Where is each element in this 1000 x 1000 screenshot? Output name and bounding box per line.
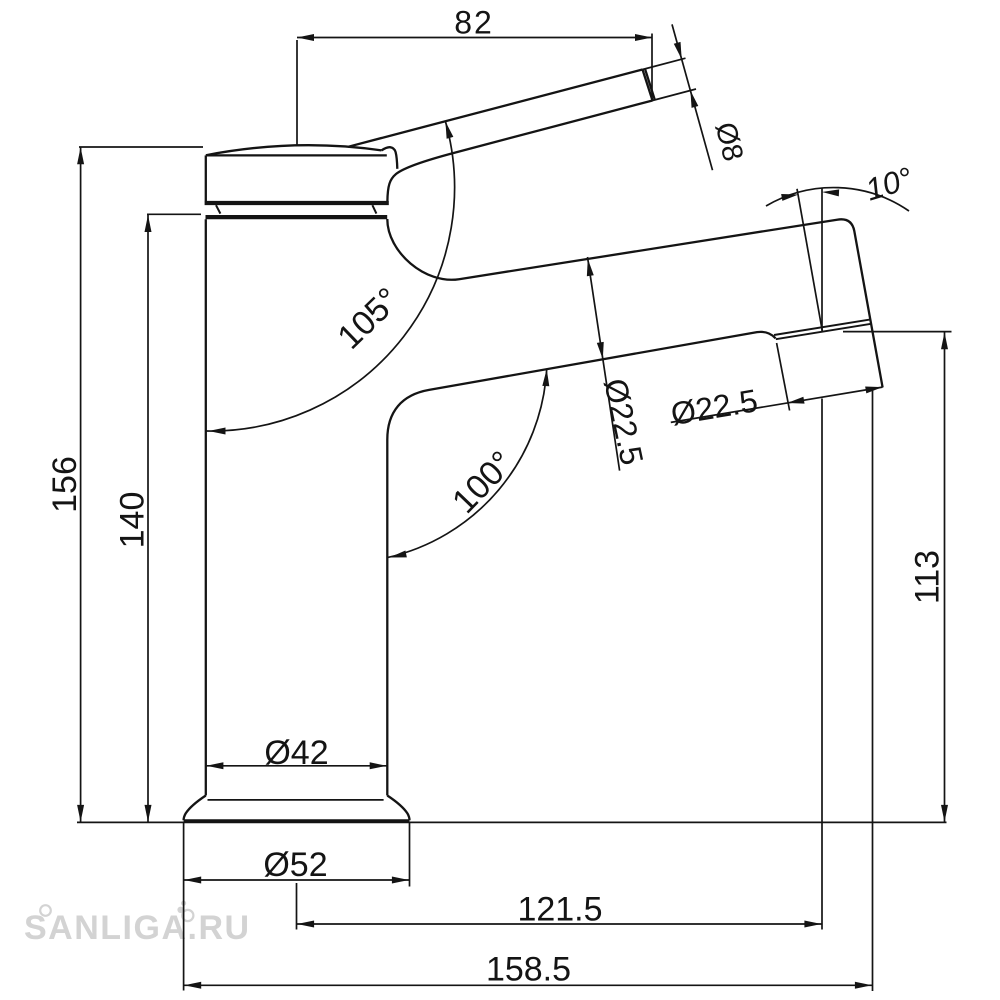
- svg-text:121.5: 121.5: [517, 891, 602, 929]
- svg-text:82: 82: [454, 5, 494, 41]
- svg-text:113: 113: [909, 550, 947, 604]
- svg-text:Ø42: Ø42: [264, 734, 328, 772]
- svg-text:Ø52: Ø52: [263, 846, 327, 884]
- svg-text:158.5: 158.5: [486, 950, 571, 988]
- svg-text:140: 140: [114, 492, 152, 549]
- svg-text:156: 156: [46, 456, 84, 513]
- svg-text:SANLIGA.RU: SANLIGA.RU: [24, 909, 251, 947]
